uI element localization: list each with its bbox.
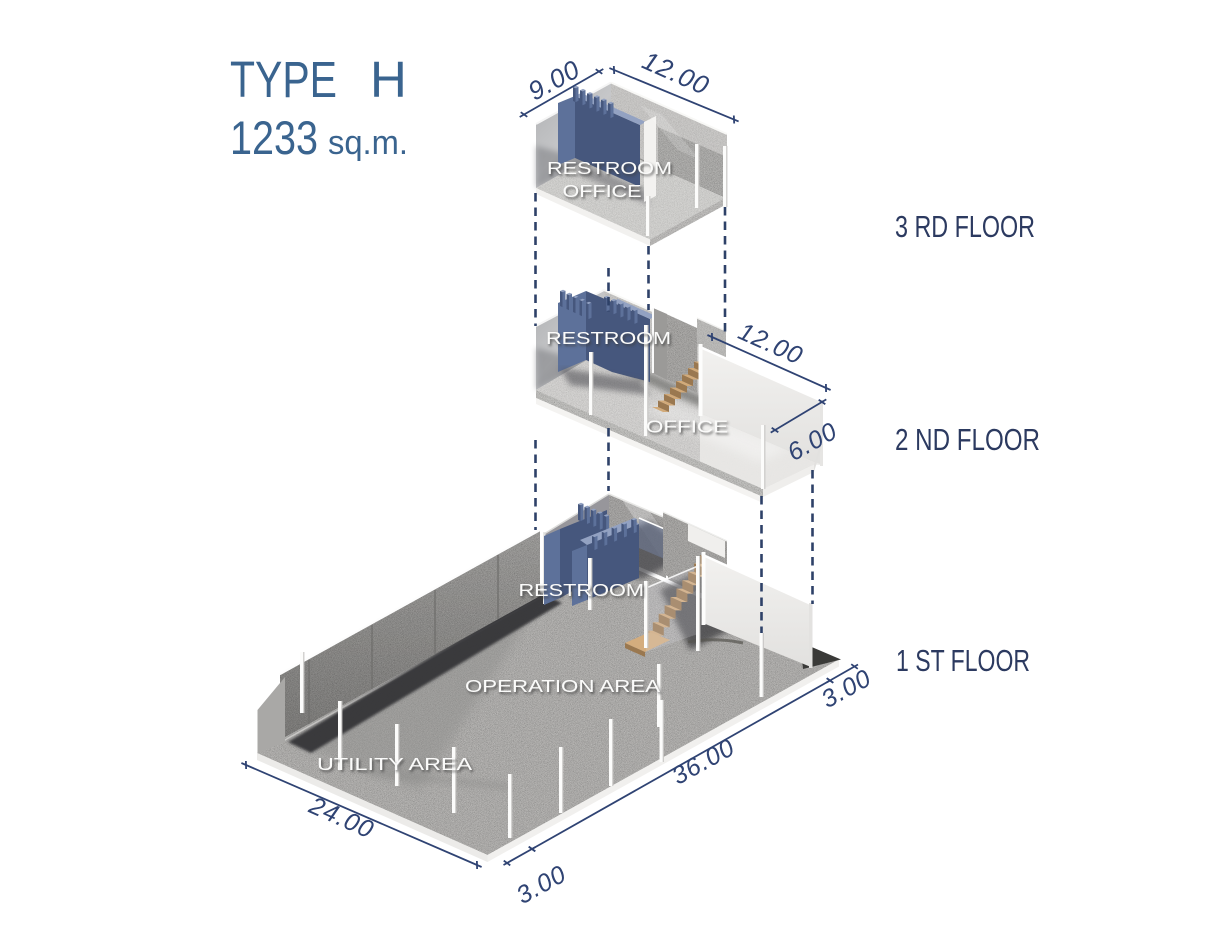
svg-text:sq.m.: sq.m. [328,124,408,162]
svg-text:RESTROOM: RESTROOM [546,328,671,348]
svg-text:1233: 1233 [230,111,318,164]
svg-text:1 ST FLOOR: 1 ST FLOOR [896,643,1030,678]
svg-text:3 RD FLOOR: 3 RD FLOOR [895,209,1035,244]
svg-text:TYPE: TYPE [230,51,337,108]
svg-text:OPERATION AREA: OPERATION AREA [465,676,660,696]
svg-text:OFFICE: OFFICE [646,417,728,437]
svg-text:UTILITY AREA: UTILITY AREA [317,754,472,774]
svg-text:RESTROOM: RESTROOM [519,580,645,600]
svg-text:2 ND FLOOR: 2 ND FLOOR [895,422,1040,457]
svg-text:RESTROOM: RESTROOM [547,158,672,178]
svg-text:H: H [370,51,407,108]
svg-text:OFFICE: OFFICE [563,181,642,201]
